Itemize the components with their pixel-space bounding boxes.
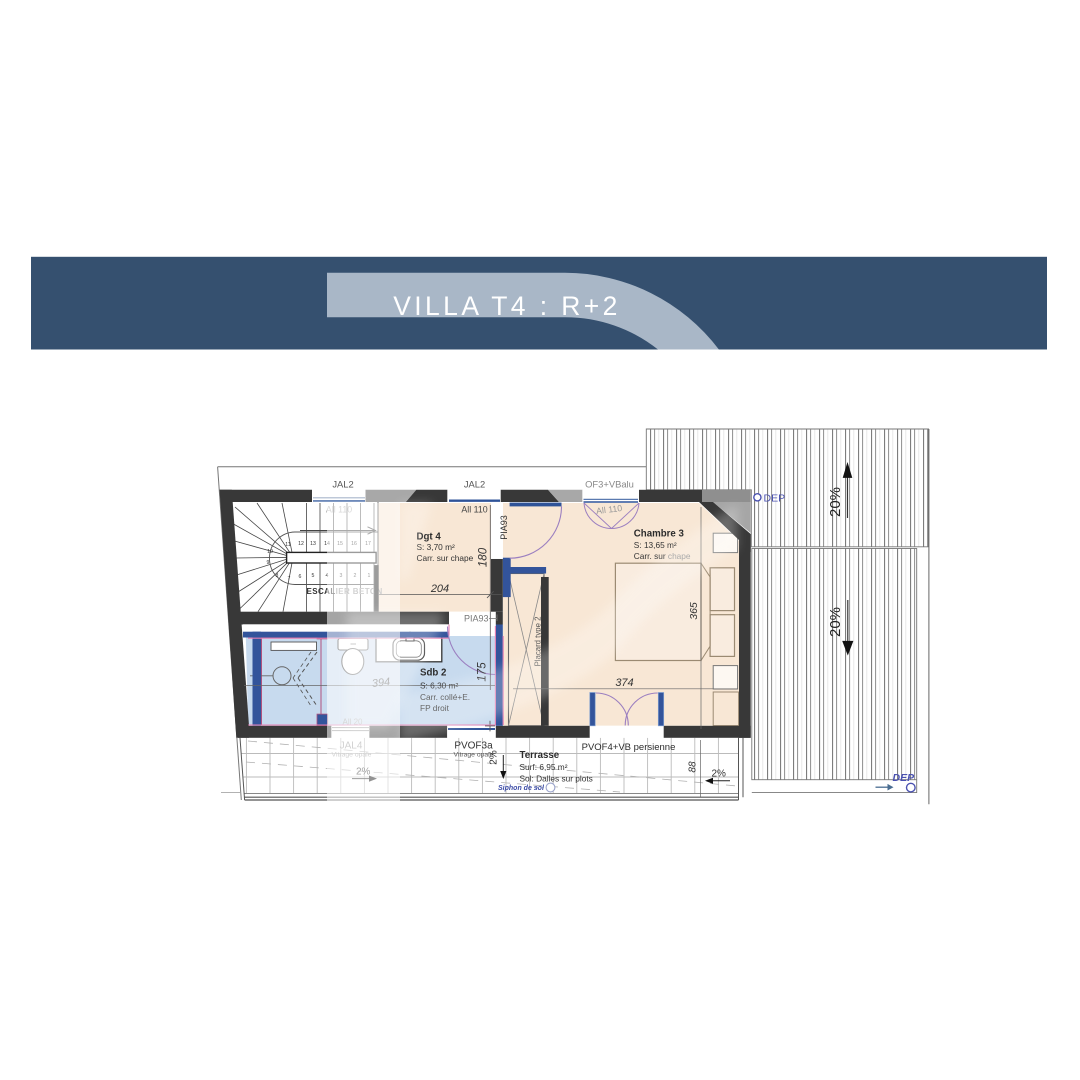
svg-text:Siphon de sol: Siphon de sol	[498, 785, 545, 792]
svg-text:10: 10	[267, 549, 273, 555]
svg-text:S: 13,65 m²: S: 13,65 m²	[634, 540, 677, 550]
svg-text:OF3+VBalu: OF3+VBalu	[585, 479, 634, 490]
svg-text:Surf: 6,95 m²: Surf: 6,95 m²	[520, 762, 568, 772]
svg-text:PIA93: PIA93	[499, 515, 509, 540]
svg-text:5: 5	[312, 573, 315, 579]
svg-text:JAL2: JAL2	[332, 479, 353, 490]
svg-text:DEP: DEP	[893, 772, 916, 784]
svg-text:374: 374	[615, 677, 633, 689]
svg-text:Sol: Dalles sur plots: Sol: Dalles sur plots	[520, 774, 593, 784]
svg-text:PVOF4+VB persienne: PVOF4+VB persienne	[582, 742, 676, 753]
svg-text:2%: 2%	[712, 769, 727, 780]
svg-text:S: 3,70 m²: S: 3,70 m²	[417, 542, 456, 552]
svg-text:2%: 2%	[489, 750, 500, 765]
svg-text:365: 365	[688, 602, 700, 620]
svg-text:204: 204	[430, 583, 449, 595]
svg-text:20%: 20%	[827, 607, 844, 637]
svg-text:Sdb 2: Sdb 2	[420, 668, 446, 679]
svg-text:JAL2: JAL2	[464, 479, 485, 490]
svg-text:11: 11	[285, 542, 290, 548]
svg-text:13: 13	[310, 541, 316, 547]
svg-text:Terrasse: Terrasse	[520, 750, 560, 761]
svg-text:All 110: All 110	[461, 505, 487, 515]
svg-text:DEP: DEP	[764, 493, 786, 505]
svg-text:6: 6	[299, 574, 302, 580]
svg-text:12: 12	[298, 541, 304, 547]
svg-text:8: 8	[276, 573, 279, 579]
svg-text:9: 9	[267, 560, 270, 566]
svg-text:7: 7	[288, 576, 291, 582]
svg-text:PIA93: PIA93	[464, 614, 489, 624]
svg-text:VILLA T4 : R+2: VILLA T4 : R+2	[393, 291, 621, 321]
svg-text:Chambre 3: Chambre 3	[634, 529, 685, 540]
svg-text:88: 88	[688, 761, 699, 773]
svg-text:PVOF3a: PVOF3a	[454, 741, 493, 752]
svg-text:20%: 20%	[827, 487, 844, 517]
svg-text:180: 180	[478, 547, 490, 567]
svg-text:Carr. sur chape: Carr. sur chape	[417, 553, 474, 563]
